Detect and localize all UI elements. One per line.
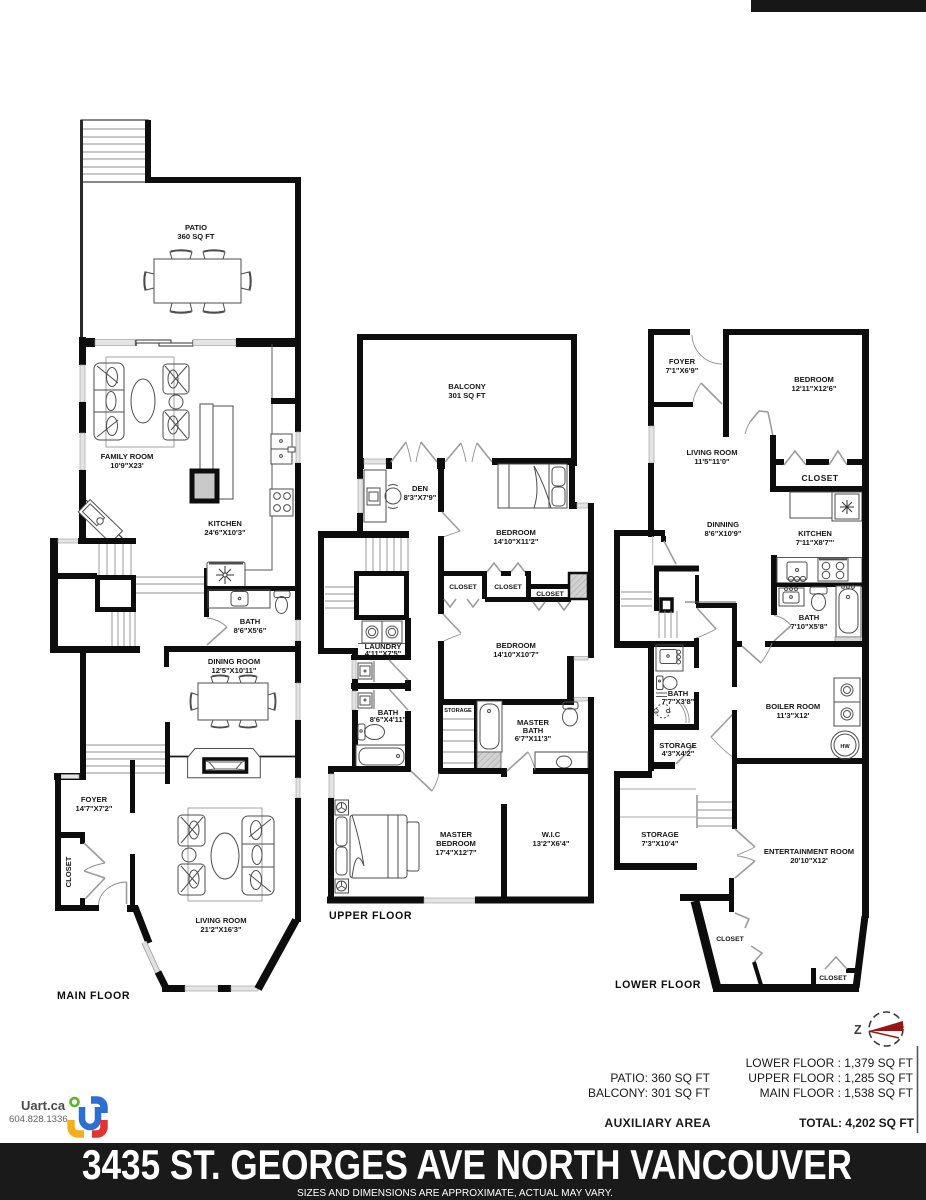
svg-text:604.828.1336: 604.828.1336 — [9, 1114, 68, 1125]
svg-text:STORAGE: STORAGE — [444, 708, 472, 714]
svg-text:3435 ST. GEORGES AVE NORTH VAN: 3435 ST. GEORGES AVE NORTH VANCOUVER — [82, 1141, 852, 1188]
svg-text:301 SQ FT: 301 SQ FT — [448, 391, 485, 400]
svg-text:BOILER ROOM: BOILER ROOM — [766, 702, 820, 711]
svg-text:11'3"X12': 11'3"X12' — [777, 711, 810, 720]
svg-text:8'6"X10'9": 8'6"X10'9" — [705, 529, 742, 538]
svg-text:17'4"X12'7": 17'4"X12'7" — [435, 848, 477, 857]
svg-text:7'10"X5'8": 7'10"X5'8" — [791, 622, 828, 631]
svg-text:12'5"X10'11": 12'5"X10'11" — [211, 666, 256, 675]
svg-text:CLOSET: CLOSET — [819, 975, 847, 982]
svg-text:DINING ROOM: DINING ROOM — [208, 657, 260, 666]
svg-text:W.I.C: W.I.C — [542, 830, 561, 839]
svg-text:Uart.ca: Uart.ca — [21, 1098, 66, 1113]
svg-text:LOWER FLOOR: LOWER FLOOR — [615, 979, 701, 991]
svg-text:TOTAL: 4,202 SQ FT: TOTAL: 4,202 SQ FT — [799, 1116, 915, 1130]
svg-text:DINNING: DINNING — [707, 520, 739, 529]
svg-text:7'11"X8'7"': 7'11"X8'7"' — [796, 538, 835, 547]
svg-text:FOYER: FOYER — [81, 795, 108, 804]
svg-text:AUXILIARY AREA: AUXILIARY AREA — [605, 1116, 712, 1130]
svg-text:BEDROOM: BEDROOM — [436, 839, 476, 848]
svg-text:8'6"X4'11": 8'6"X4'11" — [370, 715, 407, 724]
svg-text:CLOSET: CLOSET — [64, 856, 73, 887]
svg-text:20'10"X12': 20'10"X12' — [790, 856, 828, 865]
svg-text:BEDROOM: BEDROOM — [496, 641, 536, 650]
svg-text:FAMILY ROOM: FAMILY ROOM — [101, 452, 154, 461]
svg-text:LIVING ROOM: LIVING ROOM — [195, 916, 246, 925]
svg-text:KITCHEN: KITCHEN — [208, 519, 242, 528]
svg-text:LOWER FLOOR : 1,379 SQ FT: LOWER FLOOR : 1,379 SQ FT — [746, 1056, 914, 1070]
svg-text:14'7"X7'2": 14'7"X7'2" — [76, 804, 113, 813]
svg-text:MASTER: MASTER — [440, 830, 473, 839]
svg-text:UPPER FLOOR : 1,285 SQ FT: UPPER FLOOR : 1,285 SQ FT — [748, 1071, 913, 1085]
svg-text:6'7"X11'3": 6'7"X11'3" — [515, 734, 552, 743]
svg-text:BEDROOM: BEDROOM — [496, 528, 536, 537]
svg-text:ENTERTAINMENT ROOM: ENTERTAINMENT ROOM — [764, 847, 854, 856]
svg-text:7'1"X6'9": 7'1"X6'9" — [666, 366, 699, 375]
svg-text:CLOSET: CLOSET — [449, 584, 477, 591]
svg-text:BALCONY: 301 SQ FT: BALCONY: 301 SQ FT — [588, 1086, 711, 1100]
svg-text:Z: Z — [854, 1023, 862, 1037]
svg-text:360 SQ FT: 360 SQ FT — [177, 232, 214, 241]
svg-text:HW: HW — [840, 744, 850, 750]
svg-text:STORAGE: STORAGE — [641, 830, 678, 839]
svg-text:11'5"11'0": 11'5"11'0" — [694, 457, 730, 466]
svg-text:MAIN FLOOR: MAIN FLOOR — [57, 990, 130, 1002]
svg-text:SIZES AND DIMENSIONS ARE APPRO: SIZES AND DIMENSIONS ARE APPROXIMATE, AC… — [297, 1188, 613, 1199]
svg-text:BATH: BATH — [799, 613, 820, 622]
svg-text:LIVING ROOM: LIVING ROOM — [686, 448, 737, 457]
svg-text:PATIO: 360 SQ FT: PATIO: 360 SQ FT — [610, 1071, 710, 1085]
svg-text:12'11"X12'6": 12'11"X12'6" — [791, 384, 836, 393]
svg-text:10'9"X23': 10'9"X23' — [110, 461, 144, 470]
svg-text:7'7"X3'8": 7'7"X3'8" — [662, 697, 695, 706]
svg-text:CLOSET: CLOSET — [536, 591, 564, 598]
svg-text:8'6"X5'6": 8'6"X5'6" — [234, 626, 267, 635]
svg-text:FOYER: FOYER — [669, 357, 696, 366]
svg-text:14'10"X11'2": 14'10"X11'2" — [493, 537, 538, 546]
svg-text:24'6"X10'3": 24'6"X10'3" — [204, 528, 246, 537]
svg-text:14'10"X10'7": 14'10"X10'7" — [493, 650, 539, 659]
svg-text:CLOSET: CLOSET — [716, 936, 744, 943]
svg-text:CLOSET: CLOSET — [802, 473, 839, 483]
svg-text:BATH: BATH — [240, 617, 261, 626]
svg-text:KITCHEN: KITCHEN — [798, 529, 832, 538]
svg-text:13'2"X6'4": 13'2"X6'4" — [533, 839, 570, 848]
svg-text:BEDROOM: BEDROOM — [794, 375, 834, 384]
svg-text:MAIN FLOOR : 1,538 SQ FT: MAIN FLOOR : 1,538 SQ FT — [760, 1086, 914, 1100]
svg-text:8'3"X7'9": 8'3"X7'9" — [404, 493, 437, 502]
svg-text:PATIO: PATIO — [185, 223, 207, 232]
svg-text:CLOSET: CLOSET — [494, 584, 522, 591]
svg-text:21'2"X16'3": 21'2"X16'3" — [200, 925, 242, 934]
svg-text:4'3"X4'2": 4'3"X4'2" — [662, 749, 695, 758]
svg-text:BALCONY: BALCONY — [448, 382, 486, 391]
svg-text:DEN: DEN — [412, 484, 428, 493]
svg-text:UPPER FLOOR: UPPER FLOOR — [329, 910, 412, 922]
svg-text:7'3"X10'4": 7'3"X10'4" — [642, 839, 679, 848]
